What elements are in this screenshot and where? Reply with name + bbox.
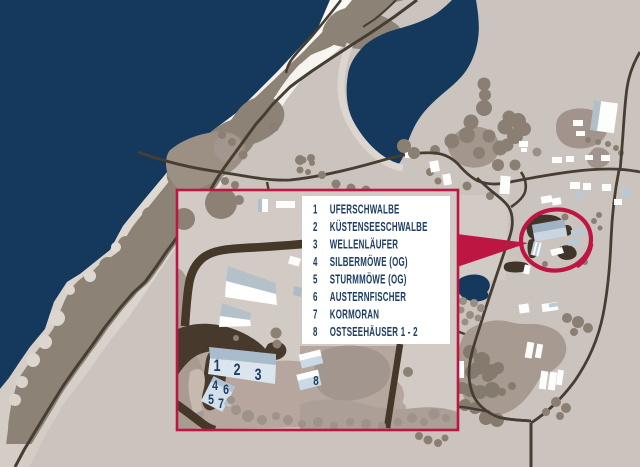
svg-text:1: 1: [313, 203, 317, 217]
svg-text:8: 8: [313, 325, 317, 339]
svg-text:2: 2: [234, 361, 241, 379]
svg-text:3: 3: [255, 366, 262, 384]
svg-text:KORMORAN: KORMORAN: [330, 308, 379, 322]
svg-text:5: 5: [313, 273, 317, 287]
svg-text:SILBERMÖWE (OG): SILBERMÖWE (OG): [330, 254, 408, 270]
svg-text:OSTSEEHÄUSER 1 - 2: OSTSEEHÄUSER 1 - 2: [330, 324, 418, 340]
svg-text:6: 6: [313, 290, 317, 304]
svg-text:4: 4: [313, 255, 317, 269]
svg-text:7: 7: [218, 396, 224, 412]
svg-text:7: 7: [313, 308, 317, 322]
svg-text:KÜSTENSEESCHWALBE: KÜSTENSEESCHWALBE: [330, 219, 428, 235]
svg-text:2: 2: [313, 220, 317, 234]
svg-text:1: 1: [214, 357, 221, 375]
svg-text:AUSTERNFISCHER: AUSTERNFISCHER: [330, 290, 406, 304]
svg-text:3: 3: [313, 238, 317, 252]
svg-text:UFERSCHWALBE: UFERSCHWALBE: [330, 203, 400, 217]
svg-text:5: 5: [208, 392, 214, 408]
svg-text:6: 6: [223, 382, 229, 398]
svg-text:STURMMÖWE (OG): STURMMÖWE (OG): [330, 271, 407, 287]
svg-text:8: 8: [313, 375, 319, 389]
svg-text:WELLENLÄUFER: WELLENLÄUFER: [330, 236, 399, 252]
